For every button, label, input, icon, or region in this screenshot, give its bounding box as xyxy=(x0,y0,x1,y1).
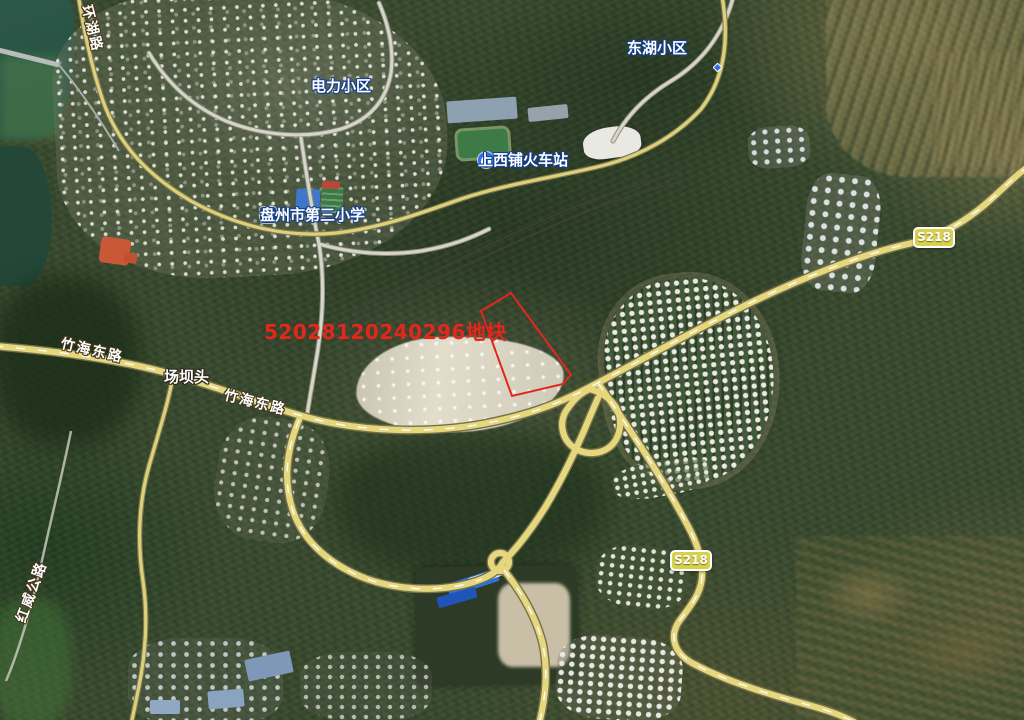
school-label: 盘州市第三小学 xyxy=(260,208,365,223)
donghu-xiaoqu-label: 东湖小区 xyxy=(627,41,687,56)
parcel-overlay xyxy=(0,0,1024,720)
s218-road-badge-north: S218 xyxy=(913,227,955,248)
s218-road-badge-south: S218 xyxy=(670,550,712,571)
dianli-xiaoqu-label: 电力小区 xyxy=(311,79,371,94)
parcel-boundary-polygon xyxy=(481,293,571,396)
parcel-id-label: 52028120240296地块 xyxy=(264,322,507,342)
train-station-label: 上西铺火车站 xyxy=(478,153,568,168)
changbatou-label: 场坝头 xyxy=(164,370,209,385)
satellite-map-canvas[interactable]: 永兴大盛生活超市 东湖小区 电力小区 环湖路 上西铺火车站 盘州市第三小学 52… xyxy=(0,0,1024,720)
